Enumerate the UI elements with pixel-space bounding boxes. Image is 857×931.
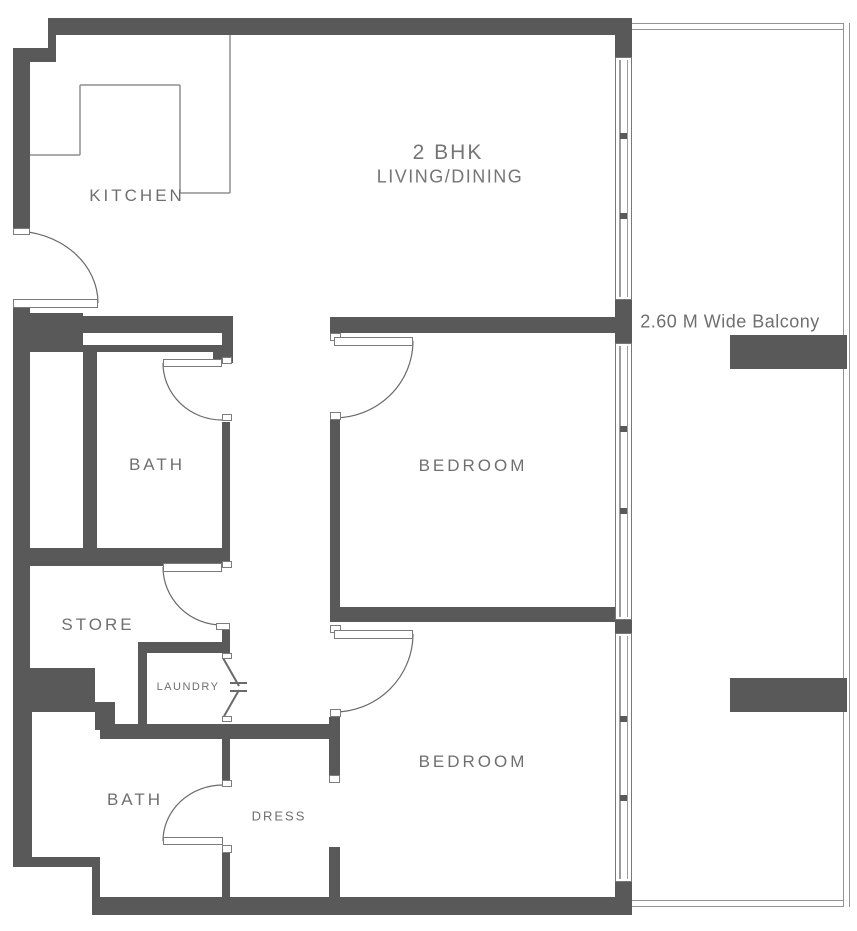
window-pane-line — [619, 346, 621, 617]
door-swing-arc — [163, 363, 222, 420]
wall-segment — [615, 300, 632, 343]
wall-segment — [13, 857, 100, 867]
door-jamb-marker — [330, 412, 341, 420]
door-jamb-marker — [222, 561, 232, 568]
unit-type-label: 2 BHK — [413, 141, 484, 165]
wall-segment — [13, 48, 30, 232]
door-swing-arc — [334, 634, 413, 712]
door-jamb-marker — [222, 845, 232, 853]
door-leaf — [334, 337, 413, 346]
window-pane-line — [619, 636, 621, 879]
wall-segment — [615, 18, 632, 57]
wall-segment — [330, 317, 615, 333]
door-swing-arc — [163, 785, 223, 841]
wall-segment — [329, 717, 340, 783]
window-mullion — [620, 133, 627, 139]
wall-segment — [100, 724, 338, 739]
room-label-laundry: LAUNDRY — [157, 681, 220, 693]
wall-segment — [48, 18, 632, 35]
room-label-living-dining: LIVING/DINING — [377, 167, 524, 188]
balcony-boundary-line — [843, 23, 850, 907]
window-pane-line — [627, 636, 629, 879]
room-label-bedroom-1: BEDROOM — [419, 456, 528, 476]
wall-segment — [92, 897, 632, 915]
wall-segment — [222, 422, 230, 548]
window — [615, 343, 632, 620]
wall-segment — [615, 882, 632, 915]
window-pane-line — [619, 60, 621, 297]
room-label-dress: DRESS — [252, 809, 307, 824]
door-jamb-marker — [222, 357, 232, 364]
laundry-bifold-door — [223, 658, 247, 718]
wall-segment — [138, 642, 147, 724]
door-jamb-marker — [222, 414, 232, 421]
window-pane-line — [627, 346, 629, 617]
wall-segment — [83, 348, 97, 548]
door-jamb-marker — [329, 775, 340, 783]
door-swing-arc — [163, 567, 222, 625]
wall-segment — [83, 345, 222, 352]
wall-segment — [330, 417, 340, 607]
window-mullion — [620, 795, 627, 801]
wall-segment — [329, 847, 340, 898]
room-label-bath-2: BATH — [107, 790, 163, 810]
door-jamb-marker — [330, 709, 341, 717]
door-swing-arc — [14, 231, 98, 303]
room-label-store: STORE — [61, 615, 134, 635]
window-mullion — [620, 213, 627, 219]
floorplan-canvas: KITCHEN 2 BHK LIVING/DINING 2.60 M Wide … — [0, 0, 857, 931]
room-label-bedroom-2: BEDROOM — [419, 752, 528, 772]
door-leaf — [163, 837, 223, 845]
wall-segment — [138, 642, 230, 653]
window-mullion — [620, 508, 627, 514]
wall-segment — [13, 566, 30, 668]
room-label-balcony: 2.60 M Wide Balcony — [640, 312, 820, 333]
wall-segment — [330, 607, 615, 622]
door-jamb-marker — [222, 780, 232, 787]
window — [615, 57, 632, 300]
window-mullion — [620, 716, 627, 722]
wall-segment — [13, 313, 83, 352]
room-label-bath-1: BATH — [129, 455, 185, 475]
door-jamb-marker — [216, 623, 230, 630]
window — [615, 633, 632, 882]
wall-segment — [13, 668, 95, 712]
wall-segment — [83, 316, 213, 333]
room-label-kitchen: KITCHEN — [89, 186, 185, 206]
door-swing-arc — [334, 341, 413, 418]
door-leaf — [163, 359, 222, 367]
door-leaf — [163, 563, 222, 572]
window-mullion — [620, 426, 627, 432]
door-leaf — [13, 299, 98, 308]
door-jamb-marker — [222, 716, 232, 722]
wall-segment — [615, 620, 632, 633]
balcony-boundary-line — [632, 23, 843, 30]
wall-recess — [97, 333, 222, 345]
wall-segment — [730, 678, 847, 712]
door-jamb-marker — [222, 653, 232, 659]
window-pane-line — [627, 60, 629, 297]
door-jamb-marker — [13, 228, 30, 235]
wall-segment — [13, 712, 32, 867]
door-leaf — [334, 630, 413, 639]
balcony-boundary-line — [632, 900, 843, 907]
wall-segment — [730, 335, 847, 369]
